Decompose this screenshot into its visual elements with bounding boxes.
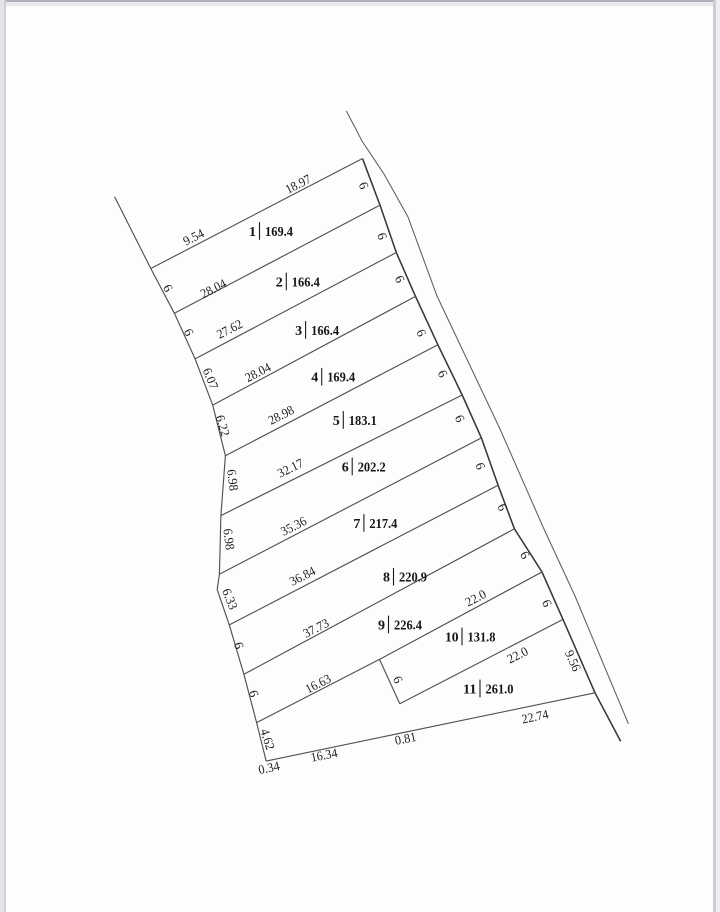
svg-text:131.8: 131.8 [468, 630, 496, 645]
svg-text:166.4: 166.4 [311, 324, 339, 339]
svg-text:183.1: 183.1 [349, 414, 377, 429]
svg-text:217.4: 217.4 [369, 517, 397, 532]
svg-text:6: 6 [342, 460, 349, 475]
svg-text:7: 7 [353, 517, 360, 532]
svg-text:169.4: 169.4 [327, 371, 355, 386]
svg-text:9: 9 [378, 618, 385, 633]
svg-text:5: 5 [333, 414, 340, 429]
svg-text:4: 4 [311, 371, 318, 386]
svg-text:6.98: 6.98 [220, 528, 238, 551]
svg-text:6.98: 6.98 [224, 468, 242, 491]
svg-text:1: 1 [249, 225, 256, 240]
svg-text:3: 3 [295, 324, 302, 339]
svg-text:8: 8 [383, 571, 390, 586]
svg-text:169.4: 169.4 [265, 225, 293, 240]
svg-text:226.4: 226.4 [394, 618, 422, 633]
svg-text:166.4: 166.4 [292, 275, 320, 290]
svg-text:202.2: 202.2 [358, 460, 386, 475]
svg-text:11: 11 [463, 682, 477, 697]
svg-text:220.9: 220.9 [399, 571, 427, 586]
svg-text:10: 10 [445, 630, 459, 645]
svg-text:2: 2 [276, 275, 283, 290]
svg-text:261.0: 261.0 [486, 682, 514, 697]
